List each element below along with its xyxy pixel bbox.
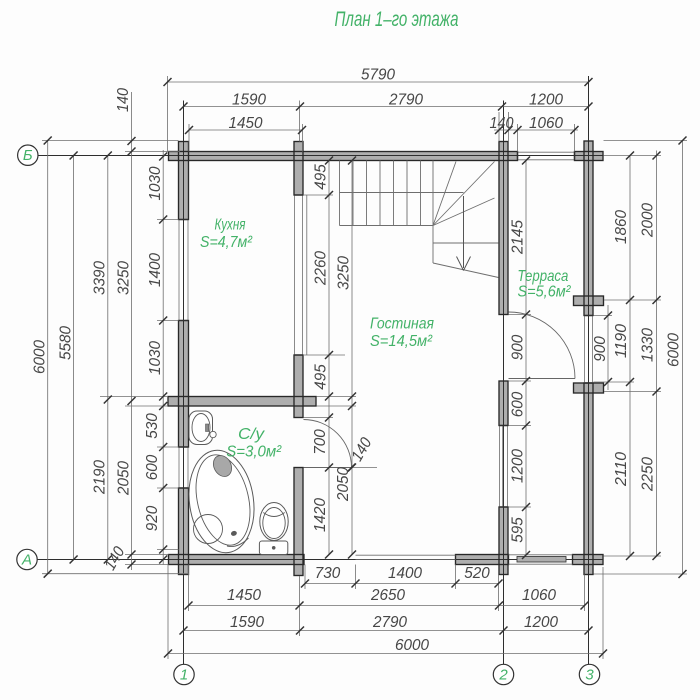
svg-text:1450: 1450 bbox=[229, 115, 263, 132]
svg-text:1590: 1590 bbox=[230, 614, 264, 631]
svg-text:520: 520 bbox=[464, 565, 490, 582]
svg-text:2260: 2260 bbox=[313, 251, 330, 286]
svg-text:1450: 1450 bbox=[227, 587, 261, 604]
svg-text:6000: 6000 bbox=[395, 637, 429, 654]
svg-text:2190: 2190 bbox=[92, 460, 109, 495]
svg-text:3250: 3250 bbox=[336, 256, 353, 290]
svg-text:1060: 1060 bbox=[522, 587, 556, 604]
svg-text:5580: 5580 bbox=[58, 326, 75, 360]
svg-text:1860: 1860 bbox=[613, 210, 630, 244]
svg-text:2250: 2250 bbox=[640, 457, 657, 492]
svg-text:Кухня: Кухня bbox=[215, 217, 246, 234]
svg-text:1200: 1200 bbox=[510, 449, 527, 483]
svg-text:1200: 1200 bbox=[529, 92, 563, 109]
svg-text:2145: 2145 bbox=[510, 220, 527, 255]
svg-text:3390: 3390 bbox=[92, 261, 109, 295]
svg-text:730: 730 bbox=[315, 565, 341, 582]
svg-text:1420: 1420 bbox=[312, 498, 329, 532]
svg-text:1400: 1400 bbox=[147, 253, 164, 287]
svg-text:S=5,6м²: S=5,6м² bbox=[518, 284, 572, 301]
svg-text:595: 595 bbox=[510, 517, 527, 543]
svg-text:S=3,0м²: S=3,0м² bbox=[226, 444, 282, 461]
svg-text:2110: 2110 bbox=[613, 452, 630, 487]
svg-text:План 1–го этажа: План 1–го этажа bbox=[335, 8, 459, 31]
svg-text:Терраса: Терраса bbox=[517, 268, 568, 285]
svg-text:1190: 1190 bbox=[613, 324, 630, 358]
svg-text:3250: 3250 bbox=[116, 261, 133, 295]
svg-text:140: 140 bbox=[490, 115, 514, 132]
svg-text:2000: 2000 bbox=[640, 203, 657, 238]
svg-text:1030: 1030 bbox=[147, 166, 164, 200]
svg-text:495: 495 bbox=[313, 164, 330, 190]
svg-text:1200: 1200 bbox=[524, 614, 558, 631]
svg-text:Гостиная: Гостиная bbox=[370, 316, 434, 333]
svg-text:6000: 6000 bbox=[666, 333, 683, 367]
svg-text:Б: Б bbox=[23, 147, 33, 164]
svg-text:600: 600 bbox=[144, 455, 161, 481]
svg-text:900: 900 bbox=[510, 335, 527, 361]
svg-text:5790: 5790 bbox=[361, 67, 395, 84]
svg-text:6000: 6000 bbox=[32, 340, 49, 374]
svg-text:1: 1 bbox=[180, 667, 188, 684]
svg-text:2050: 2050 bbox=[116, 461, 133, 496]
svg-text:1330: 1330 bbox=[640, 328, 657, 362]
svg-text:2050: 2050 bbox=[335, 467, 352, 502]
svg-text:530: 530 bbox=[144, 413, 161, 439]
svg-text:С/у: С/у bbox=[238, 426, 265, 443]
svg-text:S=4,7м²: S=4,7м² bbox=[200, 234, 253, 251]
svg-text:2790: 2790 bbox=[388, 92, 423, 109]
svg-text:2790: 2790 bbox=[372, 614, 407, 631]
svg-text:140: 140 bbox=[115, 88, 132, 112]
svg-text:А: А bbox=[21, 552, 32, 569]
svg-text:920: 920 bbox=[144, 506, 161, 532]
svg-text:900: 900 bbox=[592, 336, 609, 362]
svg-text:3: 3 bbox=[585, 667, 594, 684]
svg-text:495: 495 bbox=[313, 364, 330, 390]
svg-text:1400: 1400 bbox=[388, 565, 422, 582]
svg-text:600: 600 bbox=[510, 392, 527, 418]
svg-text:S=14,5м²: S=14,5м² bbox=[370, 333, 433, 350]
svg-text:1030: 1030 bbox=[147, 341, 164, 375]
svg-text:140: 140 bbox=[349, 435, 376, 464]
svg-text:1060: 1060 bbox=[529, 115, 563, 132]
svg-text:700: 700 bbox=[312, 429, 329, 455]
svg-text:2650: 2650 bbox=[370, 587, 405, 604]
svg-text:1590: 1590 bbox=[232, 92, 266, 109]
svg-text:2: 2 bbox=[498, 667, 508, 684]
svg-text:140: 140 bbox=[102, 544, 129, 573]
